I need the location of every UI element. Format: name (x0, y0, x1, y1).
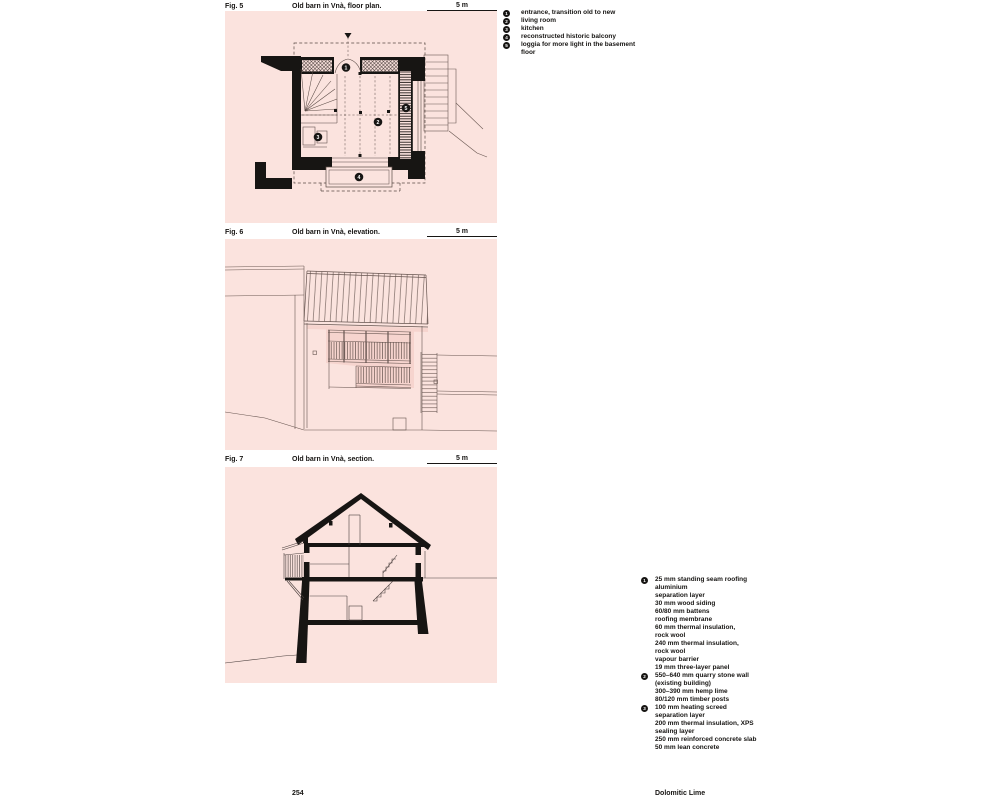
figure-label: Fig. 6 (225, 229, 243, 236)
plan-exterior-stair (424, 55, 487, 157)
legend-number-badge: 1 (503, 10, 510, 17)
legend-item: 3 kitchen (503, 25, 640, 33)
elevation-drawing (225, 239, 497, 450)
section-legend: 1 25 mm standing seam roofing aluminium … (641, 576, 771, 752)
legend-number-badge: 2 (503, 18, 510, 25)
scale-label: 5 m (456, 455, 468, 462)
legend-number-badge: 4 (503, 34, 510, 41)
section-structure (285, 493, 431, 663)
legend-number-badge: 1 (641, 577, 648, 584)
elevation-ground (225, 412, 497, 431)
svg-text:3: 3 (317, 135, 320, 141)
plan-legend: 1 entrance, transition old to new 2 livi… (503, 9, 640, 57)
fig5-header: Fig. 5 Old barn in Vnà, floor plan. 5 m (225, 0, 497, 11)
page-number: 254 (292, 790, 304, 797)
plan-loggia-strip (398, 71, 421, 159)
elevation-roof (304, 271, 428, 327)
scale-label: 5 m (456, 2, 468, 9)
figure-label: Fig. 7 (225, 456, 243, 463)
scale-bar: 5 m (427, 228, 497, 237)
legend-text: 550–640 mm quarry stone wall (existing b… (655, 672, 749, 704)
section-balcony (282, 541, 304, 600)
figure-title: Old barn in Vnà, section. (292, 456, 374, 463)
svg-text:2: 2 (377, 120, 380, 126)
legend-number-badge: 2 (641, 673, 648, 680)
legend-text: loggia for more light in the basement fl… (521, 41, 640, 57)
figure-label: Fig. 5 (225, 3, 243, 10)
floor-plan-figure: 1 2 3 4 5 (225, 11, 497, 223)
legend-number-badge: 5 (503, 42, 510, 49)
scale-label: 5 m (456, 228, 468, 235)
legend-number-badge: 3 (503, 26, 510, 33)
fig7-header: Fig. 7 Old barn in Vnà, section. 5 m (225, 453, 497, 464)
legend-text: entrance, transition old to new (521, 9, 615, 17)
section-wall-openings (304, 553, 421, 563)
legend-text: living room (521, 17, 556, 25)
fig6-header: Fig. 6 Old barn in Vnà, elevation. 5 m (225, 226, 497, 237)
plan-posts (334, 72, 390, 157)
floor-plan-drawing: 1 2 3 4 5 (225, 11, 497, 223)
legend-item: 5 loggia for more light in the basement … (503, 41, 640, 57)
elevation-exterior-stair (421, 352, 497, 413)
plan-stair (301, 69, 337, 123)
legend-item: 1 entrance, transition old to new (503, 9, 640, 17)
legend-item: 2 550–640 mm quarry stone wall (existing… (641, 672, 771, 704)
legend-item: 2 living room (503, 17, 640, 25)
svg-text:5: 5 (405, 106, 408, 112)
legend-text: kitchen (521, 25, 544, 33)
svg-text:4: 4 (358, 175, 361, 181)
book-page: Fig. 5 Old barn in Vnà, floor plan. 5 m (0, 0, 1000, 800)
scale-bar: 5 m (427, 2, 497, 11)
elevation-figure (225, 239, 497, 450)
section-drawing (225, 467, 497, 683)
scale-bar: 5 m (427, 455, 497, 464)
legend-text: 100 mm heating screed separation layer 2… (655, 704, 757, 752)
svg-text:1: 1 (345, 65, 348, 71)
legend-item: 1 25 mm standing seam roofing aluminium … (641, 576, 771, 672)
north-marker-icon (345, 33, 352, 39)
elevation-neighbour-building (225, 266, 304, 429)
legend-text: reconstructed historic balcony (521, 33, 616, 41)
legend-number-badge: 3 (641, 705, 648, 712)
section-figure (225, 467, 497, 683)
legend-text: 25 mm standing seam roofing aluminium se… (655, 576, 747, 672)
chapter-title: Dolomitic Lime (655, 790, 705, 797)
legend-item: 3 100 mm heating screed separation layer… (641, 704, 771, 752)
figure-title: Old barn in Vnà, elevation. (292, 229, 380, 236)
legend-item: 4 reconstructed historic balcony (503, 33, 640, 41)
figure-title: Old barn in Vnà, floor plan. (292, 3, 381, 10)
